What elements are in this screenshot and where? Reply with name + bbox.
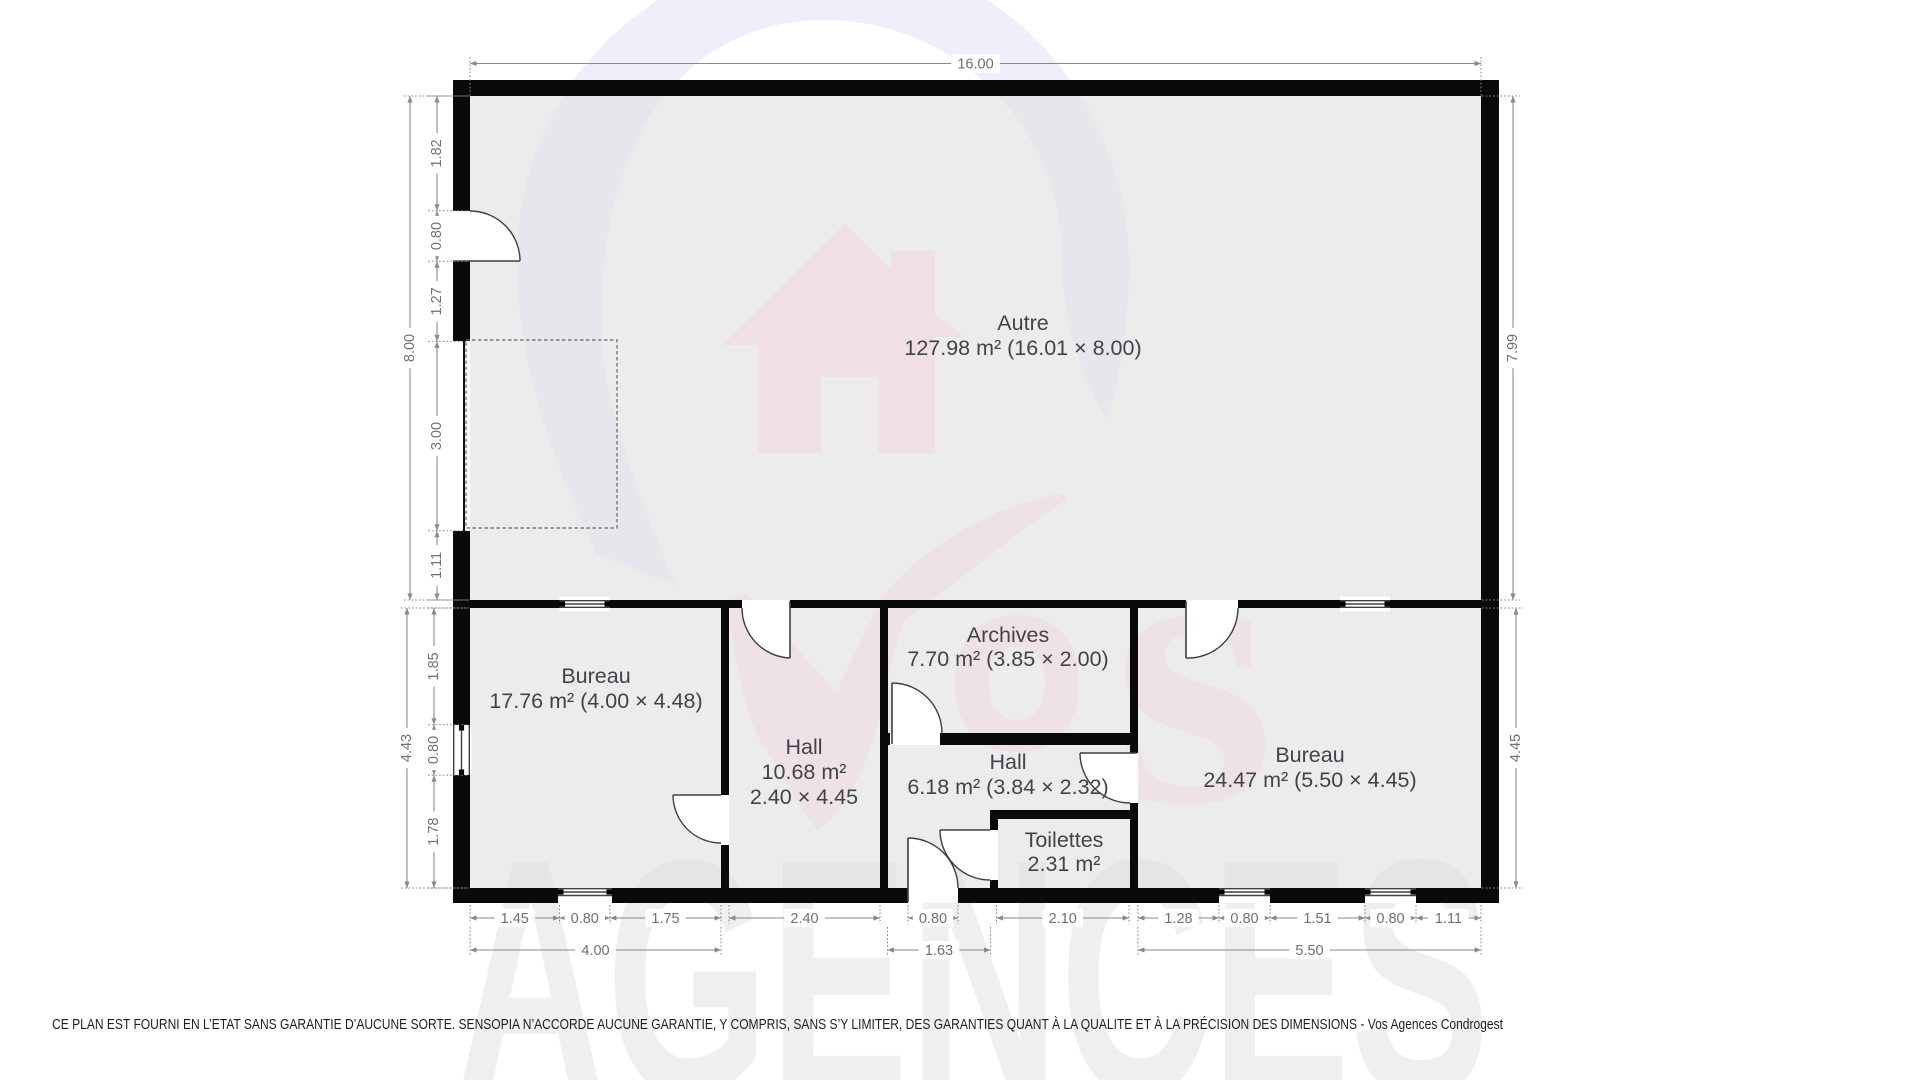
- svg-text:1.45: 1.45: [501, 911, 529, 927]
- svg-text:0.80: 0.80: [919, 911, 947, 927]
- svg-text:2.10: 2.10: [1049, 911, 1077, 927]
- svg-text:24.47 m² (5.50 × 4.45): 24.47 m² (5.50 × 4.45): [1203, 768, 1416, 792]
- svg-text:2.40: 2.40: [790, 911, 818, 927]
- svg-text:Hall: Hall: [989, 750, 1026, 774]
- svg-text:127.98 m² (16.01 × 8.00): 127.98 m² (16.01 × 8.00): [904, 336, 1141, 360]
- svg-text:Archives: Archives: [967, 623, 1049, 647]
- svg-text:1.11: 1.11: [1435, 911, 1462, 927]
- svg-text:1.63: 1.63: [925, 943, 953, 959]
- svg-text:0.80: 0.80: [1376, 911, 1404, 927]
- svg-text:1.51: 1.51: [1303, 911, 1331, 927]
- svg-text:4.00: 4.00: [581, 943, 609, 959]
- svg-text:1.82: 1.82: [429, 139, 445, 167]
- svg-text:Autre: Autre: [997, 311, 1048, 335]
- svg-text:1.27: 1.27: [429, 287, 445, 315]
- svg-text:Hall: Hall: [785, 735, 822, 759]
- svg-text:1.75: 1.75: [651, 911, 679, 927]
- svg-text:2.31 m²: 2.31 m²: [1028, 852, 1101, 876]
- svg-text:10.68 m²: 10.68 m²: [762, 760, 847, 784]
- svg-text:1.85: 1.85: [426, 652, 442, 680]
- svg-text:7.70 m² (3.85 × 2.00): 7.70 m² (3.85 × 2.00): [907, 647, 1108, 671]
- svg-text:4.45: 4.45: [1508, 734, 1524, 762]
- svg-text:Bureau: Bureau: [1275, 743, 1344, 767]
- svg-text:2.40 × 4.45: 2.40 × 4.45: [750, 785, 858, 809]
- svg-text:1.78: 1.78: [426, 817, 442, 845]
- svg-text:4.43: 4.43: [399, 734, 415, 762]
- svg-text:7.99: 7.99: [1505, 334, 1521, 362]
- svg-text:0.80: 0.80: [429, 222, 445, 250]
- svg-text:17.76 m² (4.00 × 4.48): 17.76 m² (4.00 × 4.48): [489, 689, 702, 713]
- svg-text:6.18 m² (3.84 × 2.32): 6.18 m² (3.84 × 2.32): [907, 775, 1108, 799]
- svg-text:CE PLAN EST FOURNI EN L’ETAT S: CE PLAN EST FOURNI EN L’ETAT SANS GARANT…: [52, 1016, 1504, 1033]
- svg-text:1.11: 1.11: [429, 552, 445, 579]
- svg-text:0.80: 0.80: [426, 736, 442, 764]
- svg-text:0.80: 0.80: [571, 911, 599, 927]
- svg-text:Toilettes: Toilettes: [1025, 828, 1104, 852]
- svg-text:Bureau: Bureau: [561, 664, 630, 688]
- svg-text:16.00: 16.00: [957, 57, 993, 73]
- svg-text:8.00: 8.00: [402, 334, 418, 362]
- svg-text:0.80: 0.80: [1230, 911, 1258, 927]
- svg-text:1.28: 1.28: [1164, 911, 1192, 927]
- svg-text:3.00: 3.00: [429, 422, 445, 450]
- svg-text:5.50: 5.50: [1295, 943, 1323, 959]
